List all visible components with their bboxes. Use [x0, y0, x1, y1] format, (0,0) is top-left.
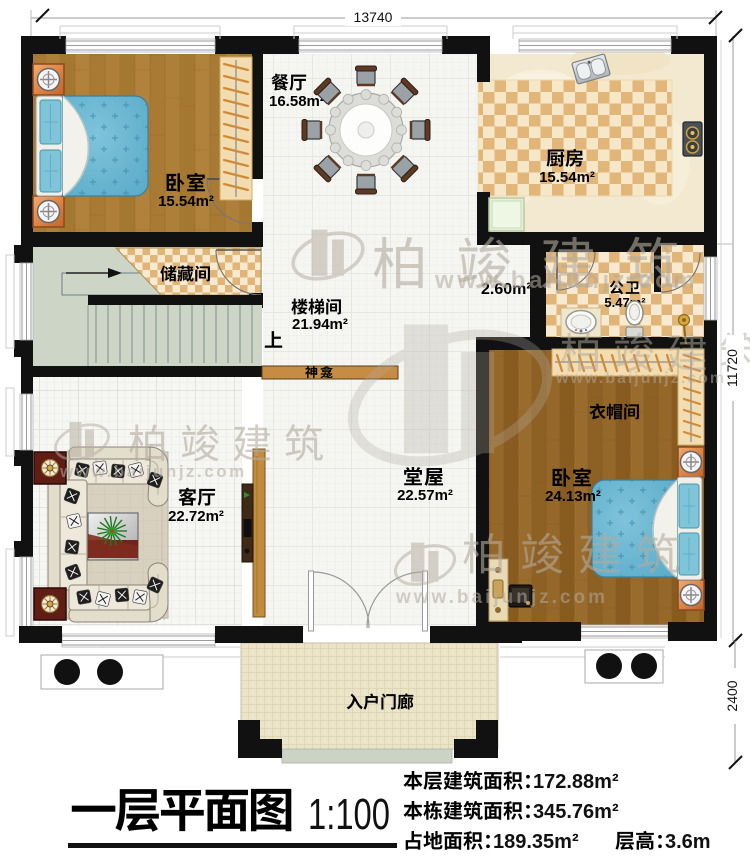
svg-text:16.58m²: 16.58m² — [269, 93, 325, 110]
svg-text:21.94m²: 21.94m² — [292, 316, 348, 333]
svg-text:13740: 13740 — [354, 9, 393, 25]
svg-text:www.baijunjz.com: www.baijunjz.com — [555, 370, 726, 387]
svg-text:2400: 2400 — [724, 680, 740, 711]
svg-text:24.13m²: 24.13m² — [545, 488, 601, 505]
svg-text:189.35m²: 189.35m² — [493, 831, 579, 853]
svg-text:www.baijunjz.com: www.baijunjz.com — [59, 462, 247, 481]
svg-text:345.76m²: 345.76m² — [533, 801, 619, 823]
svg-text:172.88m²: 172.88m² — [533, 771, 619, 793]
svg-text:22.72m²: 22.72m² — [168, 508, 224, 525]
svg-text:15.54m²: 15.54m² — [539, 169, 595, 186]
svg-text:3.6m: 3.6m — [665, 831, 711, 853]
svg-text:11720: 11720 — [724, 349, 740, 387]
svg-text:www.baijunjz.com: www.baijunjz.com — [434, 267, 698, 294]
svg-text:22.57m²: 22.57m² — [397, 487, 453, 504]
svg-text:15.54m²: 15.54m² — [158, 193, 214, 210]
svg-text:1:100: 1:100 — [308, 790, 390, 839]
svg-text:www.baijunjz.com: www.baijunjz.com — [395, 587, 608, 608]
